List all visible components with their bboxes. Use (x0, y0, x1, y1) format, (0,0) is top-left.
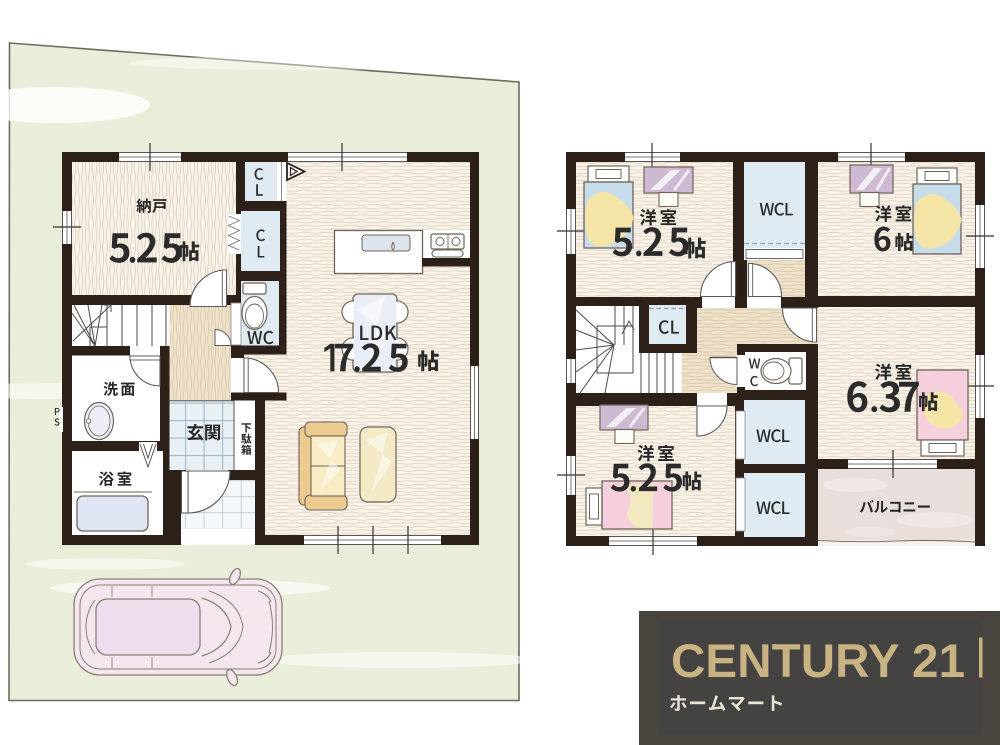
svg-text:CENTURY 21: CENTURY 21 (671, 635, 965, 688)
